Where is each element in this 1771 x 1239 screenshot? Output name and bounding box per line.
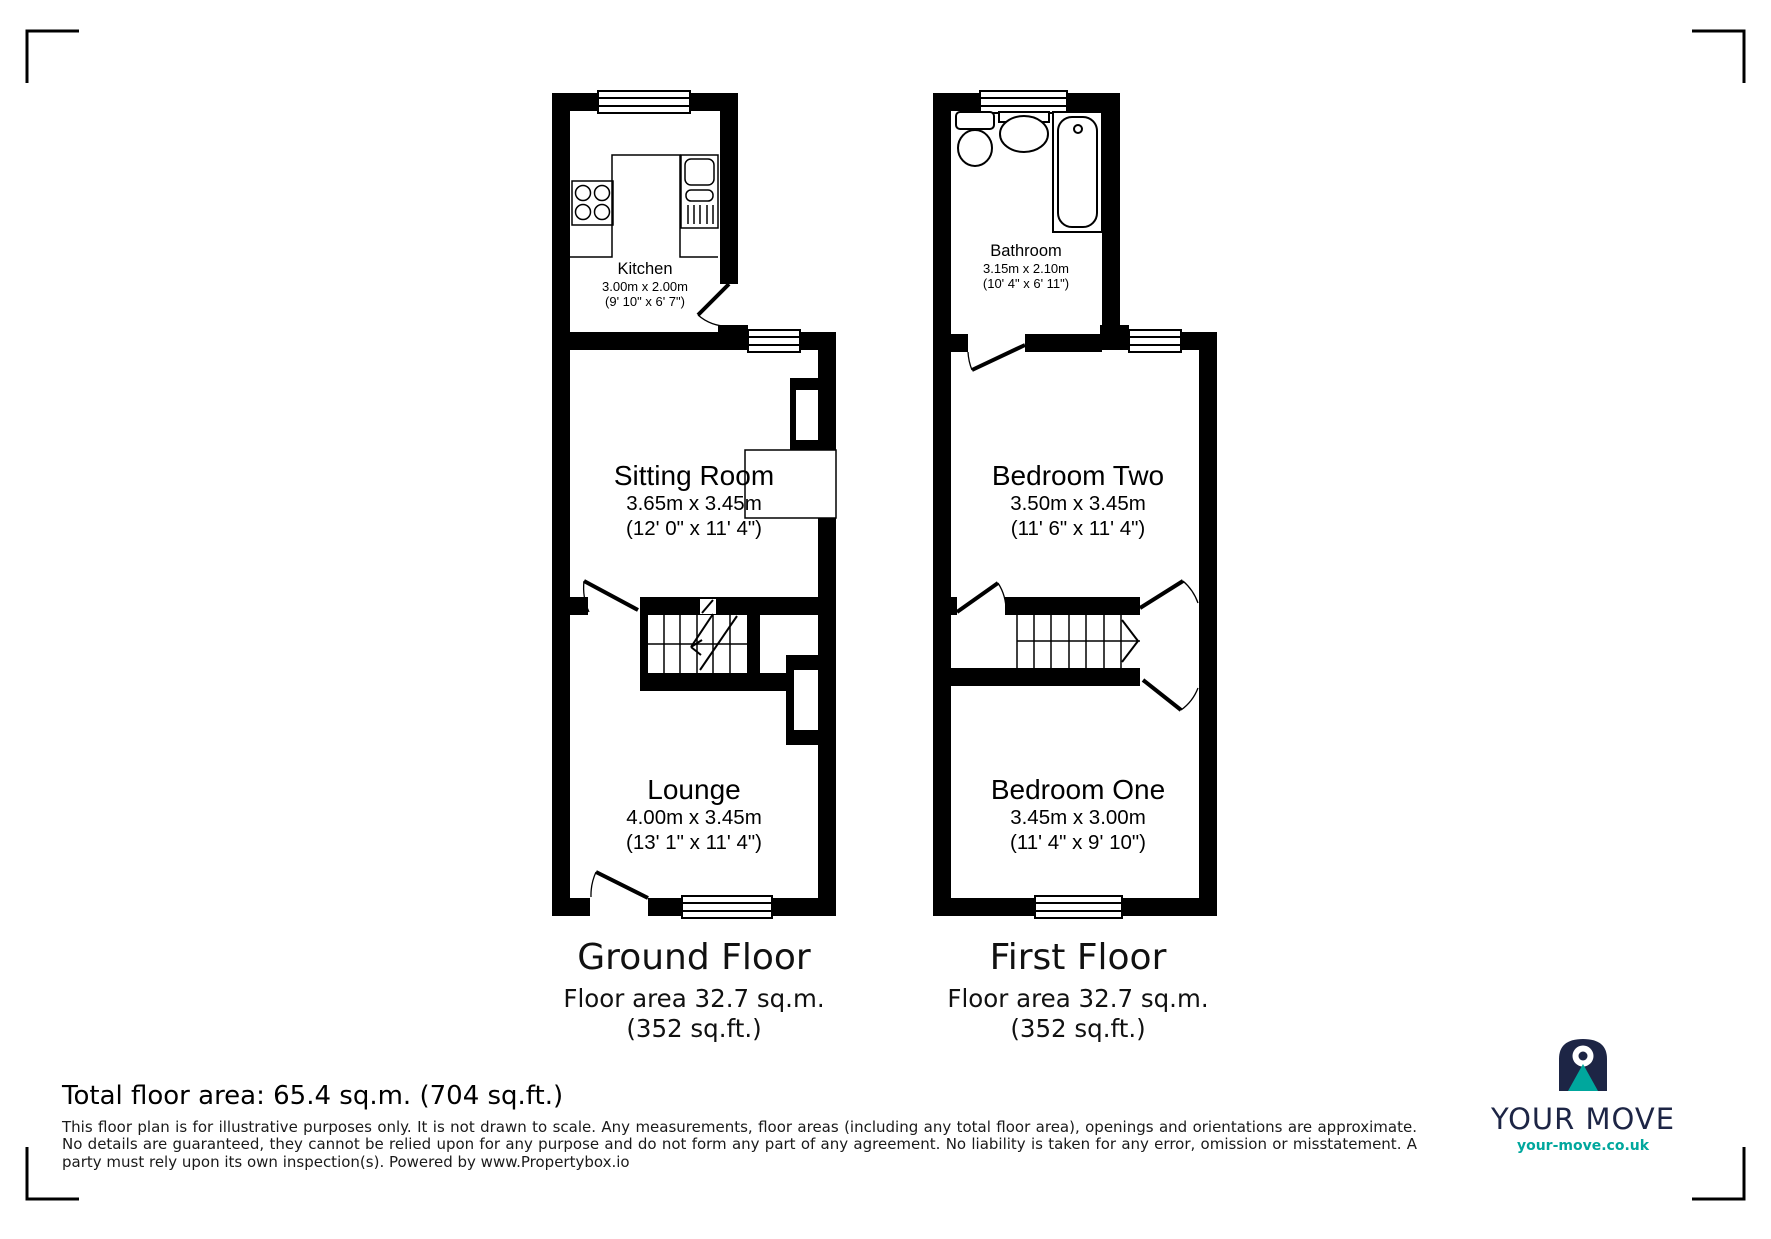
bathtub — [1053, 112, 1102, 232]
lounge-window — [682, 896, 772, 918]
total-floor-area: Total floor area: 65.4 sq.m. (704 sq.ft.… — [62, 1081, 563, 1111]
bedroom-one-window — [1035, 896, 1122, 918]
room-dim-imperial: (9' 10" x 6' 7") — [602, 294, 688, 309]
bedroom-one-door — [1143, 680, 1198, 710]
kitchen-door — [698, 284, 729, 326]
kitchen-label: Kitchen 3.00m x 2.00m (9' 10" x 6' 7") — [602, 260, 688, 309]
landing-bedroom-two-door — [1140, 581, 1198, 608]
room-dim-imperial: (13' 1" x 11' 4") — [626, 830, 762, 855]
room-name: Sitting Room — [614, 460, 774, 491]
room-dim-imperial: (10' 4" x 6' 11") — [983, 276, 1069, 291]
room-dim-metric: 3.15m x 2.10m — [983, 261, 1069, 276]
bathroom-door — [968, 345, 1025, 370]
room-dim-metric: 4.00m x 3.45m — [626, 805, 762, 830]
your-move-logo: YOUR MOVE your-move.co.uk — [1478, 1035, 1688, 1154]
room-dim-imperial: (12' 0" x 11' 4") — [614, 516, 774, 541]
ground-floor-title: Ground Floor — [577, 937, 810, 978]
understairs-door — [700, 599, 716, 614]
sitting-room-window — [748, 330, 800, 352]
disclaimer-text: This floor plan is for illustrative purp… — [62, 1119, 1417, 1171]
room-name: Kitchen — [602, 260, 688, 279]
room-dim-imperial: (11' 6" x 11' 4") — [992, 516, 1164, 541]
first-floor-title: First Floor — [990, 937, 1167, 978]
room-dim-metric: 3.50m x 3.45m — [992, 491, 1164, 516]
ground-floor-area-caption: Floor area 32.7 sq.m. (352 sq.ft.) — [539, 984, 849, 1044]
corner-crop-marks — [27, 31, 1744, 1199]
room-name: Bedroom Two — [992, 460, 1164, 491]
kitchen-window — [598, 91, 690, 113]
room-name: Bedroom One — [991, 774, 1165, 805]
bedroom-one-label: Bedroom One 3.45m x 3.00m (11' 4" x 9' 1… — [991, 774, 1165, 855]
first-stairs — [1017, 615, 1140, 668]
room-name: Lounge — [626, 774, 762, 805]
kitchen-fixtures — [570, 155, 718, 257]
bedroom-two-door — [957, 583, 1006, 612]
brand-name: YOUR MOVE — [1478, 1102, 1688, 1136]
room-dim-metric: 3.00m x 2.00m — [602, 279, 688, 294]
kitchen-counter — [570, 155, 718, 257]
bedroom-two-window — [1129, 330, 1181, 352]
your-move-logo-icon — [1555, 1035, 1611, 1093]
sitting-room-door — [584, 581, 638, 612]
bathroom-window — [980, 91, 1067, 113]
room-dim-metric: 3.65m x 3.45m — [614, 491, 774, 516]
bathroom-label: Bathroom 3.15m x 2.10m (10' 4" x 6' 11") — [983, 242, 1069, 291]
room-name: Bathroom — [983, 242, 1069, 261]
brand-url: your-move.co.uk — [1478, 1138, 1688, 1154]
room-dim-imperial: (11' 4" x 9' 10") — [991, 830, 1165, 855]
room-dim-metric: 3.45m x 3.00m — [991, 805, 1165, 830]
sitting-room-label: Sitting Room 3.65m x 3.45m (12' 0" x 11'… — [614, 460, 774, 541]
lounge-label: Lounge 4.00m x 3.45m (13' 1" x 11' 4") — [626, 774, 762, 855]
bedroom-two-label: Bedroom Two 3.50m x 3.45m (11' 6" x 11' … — [992, 460, 1164, 541]
ground-stairs — [648, 614, 747, 673]
kitchen-sink — [681, 155, 718, 228]
first-floor-area-caption: Floor area 32.7 sq.m. (352 sq.ft.) — [923, 984, 1233, 1044]
bathroom-fixtures — [956, 112, 1102, 232]
toilet — [956, 112, 994, 166]
basin — [999, 112, 1049, 152]
kitchen-hob — [572, 181, 613, 225]
floorplan-page: Kitchen 3.00m x 2.00m (9' 10" x 6' 7") S… — [0, 0, 1771, 1239]
front-door — [591, 872, 648, 898]
